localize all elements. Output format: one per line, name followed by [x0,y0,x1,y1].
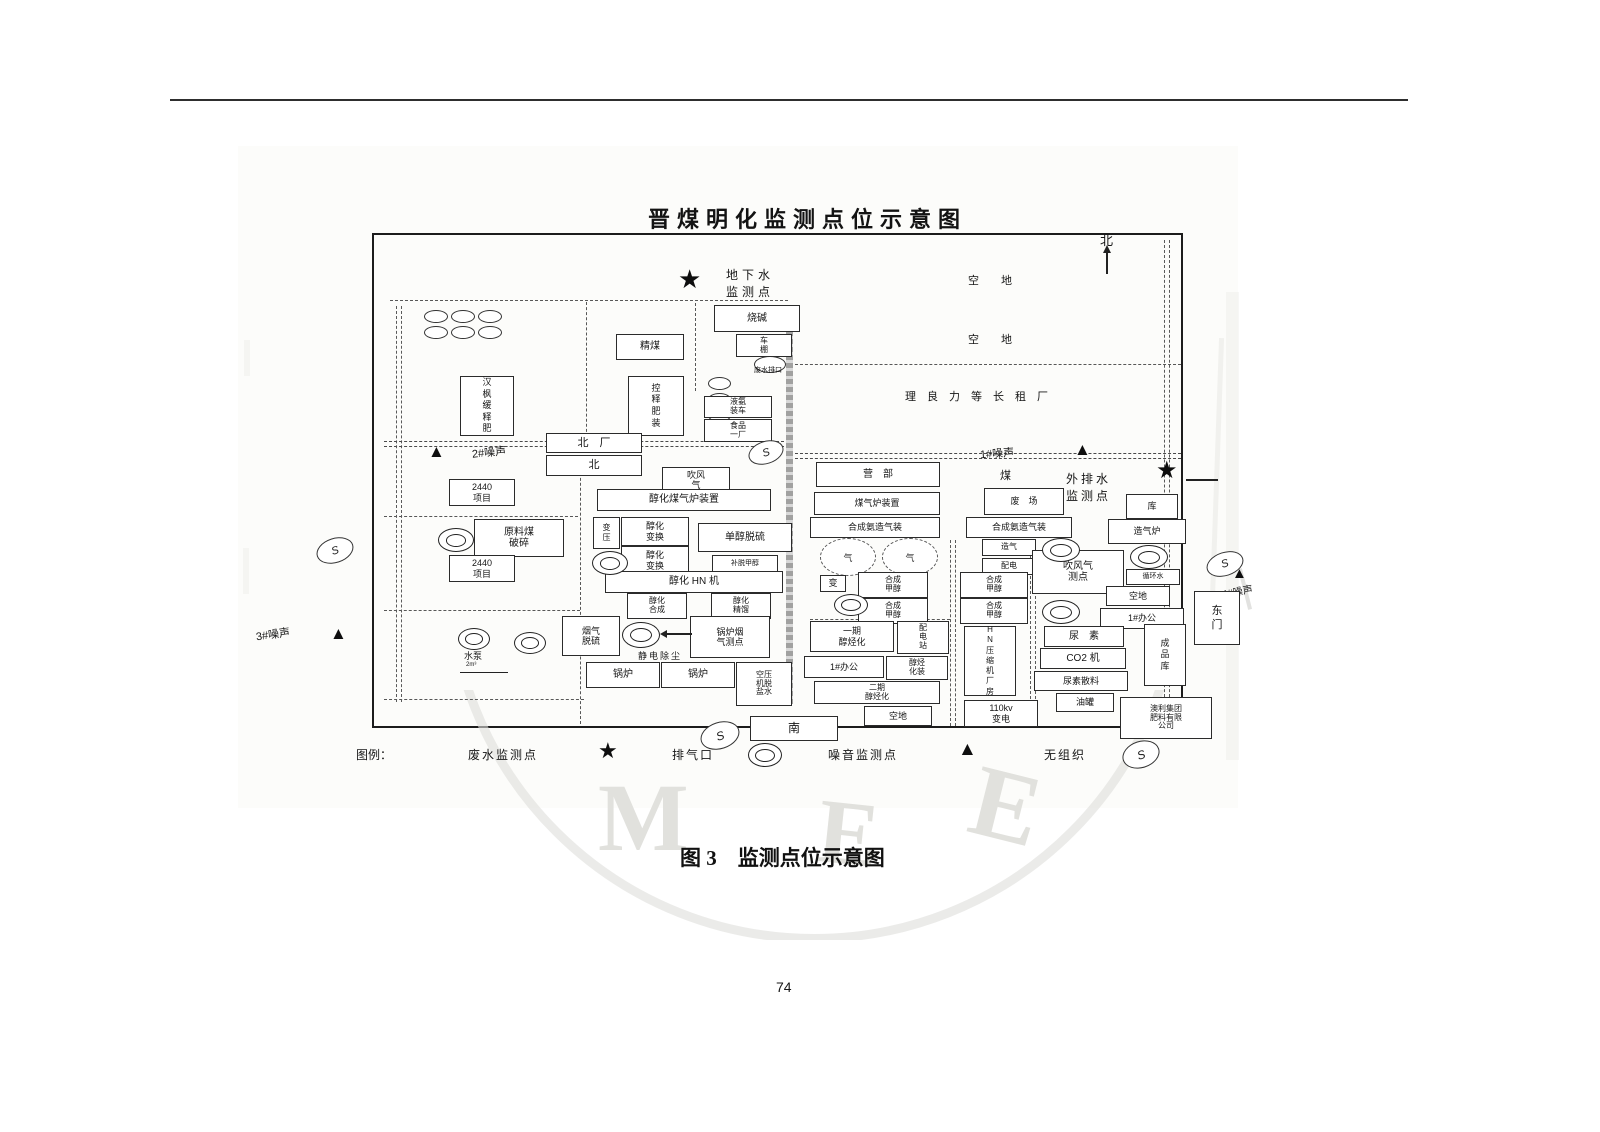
road [695,303,696,391]
road [586,302,587,442]
vent-outlet-icon [834,594,868,616]
box-synthesis: 合成 甲醇 [858,572,928,598]
page-number: 74 [776,978,792,998]
wastewater-star-icon: ★ [1156,459,1178,483]
legend-fugitive-label: 无组织 [1044,747,1086,764]
road [384,699,584,700]
outfall-small-label: 废水排口 [754,366,782,376]
box-circulating-water: 循环水 [1126,569,1180,585]
box-camp: 营 部 [816,462,940,487]
box-raw-coal-crushing: 原料煤 破碎 [474,519,564,557]
esp-label: 静电除尘 [638,650,682,663]
legend-title: 图例： [356,747,392,764]
noise-triangle-icon: ▲ [330,625,347,642]
road [580,458,581,724]
box-gas-furnace-2: 造气炉 [1108,519,1186,544]
vent-outlet-icon [514,632,546,654]
box-transformer: 变压 [593,517,620,549]
box-hn-compressor: HN压缩机厂房 [964,626,1016,696]
box-urea-bulk: 尿素散料 [1034,671,1128,691]
compass-arrow-icon [1103,245,1111,253]
box-boiler-flue-point: 锅炉烟 气测点 [690,616,770,658]
pump-underline [460,672,508,673]
box-co2-machine: CO2 机 [1040,648,1126,669]
header-rule [170,99,1408,101]
box-product-store: 成品库 [1144,624,1186,686]
box-waste-yard: 废 场 [984,488,1064,515]
open-land-label: 空 地 [968,274,1012,289]
scan-streak [243,548,249,594]
tenant-plants-label: 理良力等长租厂 [905,390,1059,405]
box-project-2440: 2440 项目 [449,555,515,582]
scanned-report-page: M E E 晋煤明化监测点位示意图 北 ★ 地下水 监测点 空 地 空 地 理良… [0,0,1600,1132]
east-gate: 东门 [1194,591,1240,645]
box-office-1: 1#办公 [804,656,884,678]
noise-point-1-label: 1#噪声 [980,446,1015,464]
box-shift-unit: 醇化 变换 [621,517,689,546]
road [950,540,956,726]
road [384,610,580,611]
box-methanol-synthesis: 醇化 合成 [627,593,687,619]
box-gasifier-unit: 醇化煤气炉装置 [597,489,771,511]
box-boiler: 锅炉 [661,662,735,688]
box-hn-unit: 醇化 HN 机 [605,571,783,593]
scan-streak [244,340,250,376]
road [795,364,1181,365]
flue-pointer-line [666,633,692,635]
box-caustic: 烧碱 [714,305,800,332]
north-plant-gate: 北 厂 [546,433,642,453]
legend-vent-icon [748,743,782,767]
box-open-land: 空地 [864,706,932,726]
west-wall-hatch [396,306,402,702]
road [384,516,578,517]
coal-label: 煤 [1000,469,1011,484]
box-crf-packing: 控释肥装 [628,376,684,436]
box-phase1-unit: 一期 醇烃化 [810,621,894,652]
diagram-title: 晋煤明化监测点位示意图 [648,202,967,234]
box-aoli-fertilizer: 澳利集团 肥料有限 公司 [1120,697,1212,739]
box-synthesis: 合成 甲醇 [960,572,1028,598]
box-boiler: 锅炉 [586,662,660,688]
groundwater-monitor-label: 地下水 监测点 [726,267,774,301]
figure-caption: 图 3 监测点位示意图 [680,842,885,872]
box-syngas-unit: 合成氨造气装 [966,517,1072,538]
legend-noise-label: 噪音监测点 [828,747,898,764]
box-warehouse: 库 [1126,494,1178,519]
box-ammonia-loading: 液氨 装车 [704,396,772,418]
north-gate: 北 [546,455,642,476]
south-gate: 南 [750,716,838,741]
box-coal-store: 精煤 [616,334,684,360]
gas-holder-icon: 气 [882,538,938,576]
scan-streak [1226,292,1239,760]
legend-triangle-icon: ▲ [958,740,977,759]
noise-triangle-icon: ▲ [1074,441,1091,458]
wastewater-star-icon: ★ [678,266,701,292]
box-desulfurization: 单醇脱硫 [698,523,792,552]
vent-outlet-icon [1042,538,1080,562]
box-food-plant: 食品 一厂 [704,419,772,442]
compass-arrow-shaft [1106,252,1108,274]
legend-wastewater-label: 废水监测点 [468,747,538,764]
box-oil-tank: 油罐 [1056,693,1114,712]
watermark-letter: E [813,777,885,889]
pump-sub-label: 2m³ [466,661,476,669]
drain-channel [786,308,793,704]
legend-star-icon: ★ [598,740,618,762]
legend-vent-label: 排气口 [672,747,714,764]
box-syngas-unit: 合成氨造气装 [810,517,940,538]
box-open-land: 空地 [1106,586,1170,606]
box-urea: 尿 素 [1044,626,1124,647]
box-hydrocarbon-unit: 醇烃 化装 [886,656,948,680]
box-gas-furnace: 煤气炉装置 [814,492,940,515]
vent-outlet-icon [622,622,660,648]
storage-tanks [424,310,506,339]
noise-triangle-icon: ▲ [428,443,445,460]
outfall-monitor-label: 外排水 监测点 [1066,471,1111,505]
box-gas-making: 造气 [982,539,1036,556]
vent-outlet-icon [458,628,490,650]
vent-outlet-icon [438,528,474,552]
box-fgd: 烟气 脱硫 [562,616,620,656]
box-air-compressor: 空压 机脱 盐水 [736,662,792,706]
box-110kv-substation: 110kv 变电 [964,700,1038,727]
box-shed: 车 棚 [736,334,792,357]
box-hanfeng-fertilizer: 汉枫缓释肥 [460,376,514,436]
vent-outlet-icon [1130,545,1168,569]
vent-outlet-icon [1042,600,1080,624]
watermark-letter: M [598,762,689,873]
box-synthesis: 合成 甲醇 [960,598,1028,624]
vent-outlet-icon [592,551,628,575]
box-substation: 配 电 站 [897,621,949,654]
open-land-label: 空 地 [968,333,1012,348]
outfall-pointer-line [1186,479,1218,481]
box-transformer-small: 变 [820,575,846,592]
box-project-2440: 2440 项目 [449,479,515,506]
gas-holder-icon: 气 [820,538,876,576]
box-methanol-strip: 补脱甲醇 [712,555,778,572]
box-phase2-unit: 二期 醇烃化 [814,681,940,704]
